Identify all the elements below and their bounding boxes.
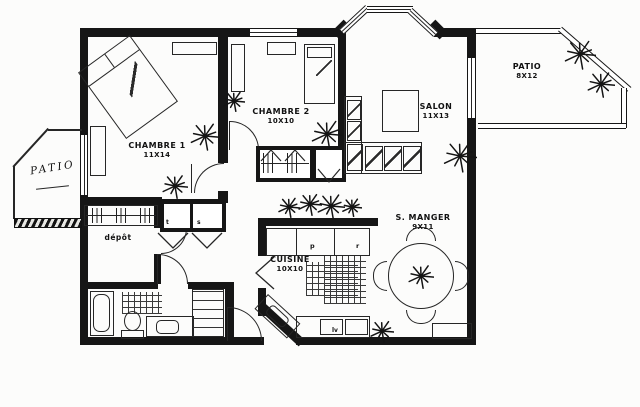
plant-icon bbox=[162, 173, 188, 203]
dishwasher-right bbox=[345, 319, 368, 335]
bay-window-center-pane bbox=[367, 6, 413, 13]
sofa-cushion-3 bbox=[365, 146, 383, 171]
kitchen-counter-north bbox=[266, 228, 370, 256]
wall-right-upper bbox=[467, 28, 476, 58]
door-arc-chambre2 bbox=[230, 121, 259, 150]
bed-chambre2 bbox=[304, 44, 335, 104]
dishwasher-label: lv bbox=[331, 328, 339, 334]
hall-closet-door-mark-1 bbox=[260, 149, 282, 162]
patio-left-label: PATIO bbox=[29, 159, 76, 178]
bed-chambre1 bbox=[78, 35, 178, 139]
bathtub-basin bbox=[93, 294, 110, 332]
patio-right-edge-bottom bbox=[478, 123, 626, 129]
sofa-cushion-corner bbox=[347, 144, 363, 171]
room-label-cuisine: CUISINE bbox=[270, 255, 310, 264]
depot-closet-clothes-3 bbox=[140, 208, 153, 223]
window-chambre2 bbox=[250, 28, 297, 37]
dining-chair-west bbox=[373, 261, 387, 291]
bed2-pillow bbox=[307, 47, 332, 58]
depot-closet-clothes-2 bbox=[116, 208, 129, 223]
kitchen-rug-b bbox=[324, 256, 366, 304]
kitchen-sink bbox=[265, 304, 291, 329]
room-label-patio-right: PATIO bbox=[513, 62, 541, 71]
plant-icon bbox=[223, 90, 245, 116]
room-label-depot: dépôt bbox=[104, 233, 131, 242]
closet-ts-divider bbox=[190, 202, 193, 229]
bed1-blanket-fold bbox=[115, 60, 152, 98]
closet-t-door-mark bbox=[156, 232, 190, 250]
sofa-cushion-2 bbox=[347, 121, 361, 141]
closet-t-label: t bbox=[166, 220, 169, 226]
closet-s-label: s bbox=[197, 220, 201, 226]
dresser-chambre2 bbox=[267, 42, 296, 55]
room-label-salle-a-manger: S. MANGER bbox=[395, 213, 450, 222]
kitchen-counter-divider-1 bbox=[296, 229, 297, 255]
room-dims-chambre1: 11X14 bbox=[144, 151, 171, 159]
sofa-cushion-4 bbox=[384, 146, 402, 171]
door-leaf-chambre1 bbox=[191, 164, 192, 193]
door-leaf-chambre2 bbox=[229, 121, 230, 150]
room-dims-salle-a-manger: 9X11 bbox=[412, 223, 434, 231]
sofa-cushion-1 bbox=[347, 100, 361, 120]
kitchen-counter-divider-2 bbox=[334, 229, 335, 255]
vanity-sink bbox=[156, 320, 179, 334]
room-dims-cuisine: 10X10 bbox=[277, 265, 304, 273]
plant-icon bbox=[408, 263, 434, 293]
coffee-table bbox=[382, 90, 419, 132]
door-arc-entry bbox=[228, 307, 262, 341]
buffet-cabinet bbox=[432, 323, 472, 339]
patio-right-edge-east bbox=[621, 88, 627, 128]
door-leaf-bathroom bbox=[157, 254, 158, 284]
dresser-chambre1-top bbox=[172, 42, 217, 55]
wall-bath-north-left bbox=[80, 282, 158, 289]
toilet-tank bbox=[121, 330, 144, 339]
hall-closet-door-mark-2 bbox=[284, 149, 306, 162]
patio-left-edge-diagonal bbox=[12, 128, 48, 167]
door-arc-chambre1 bbox=[194, 163, 224, 193]
closet-s-door-mark bbox=[190, 232, 224, 250]
patio-left-edge-west bbox=[13, 166, 15, 219]
plant-icon bbox=[311, 118, 343, 154]
plant-icon bbox=[370, 319, 394, 347]
small-closet-door-mark bbox=[317, 168, 341, 184]
sofa-cushion-5 bbox=[403, 146, 421, 171]
wall-kitchen-west-upper bbox=[258, 218, 266, 256]
dresser-chambre1-left bbox=[90, 126, 106, 176]
floor-plan-canvas: PATIO t s p r lv bbox=[0, 0, 640, 407]
plant-icon bbox=[564, 38, 596, 74]
linen-closet bbox=[192, 289, 224, 337]
depot-closet-clothes-1 bbox=[92, 208, 105, 223]
fridge-label: r bbox=[356, 243, 359, 250]
plant-icon bbox=[317, 192, 345, 224]
wardrobe-chambre2 bbox=[231, 44, 245, 92]
sliding-door-salon-patio bbox=[467, 58, 476, 118]
door-arc-bathroom bbox=[158, 254, 188, 284]
patio-left-edge-top bbox=[48, 129, 82, 131]
toilet-bowl bbox=[124, 311, 141, 331]
room-label-salon: SALON bbox=[420, 102, 453, 111]
patio-left-edge-bottom bbox=[14, 218, 82, 228]
closet-ts bbox=[160, 199, 226, 232]
door-leaf-entry bbox=[227, 307, 228, 341]
bath-rug bbox=[122, 292, 162, 314]
sliding-door-chambre1-patio bbox=[80, 135, 88, 195]
plant-icon bbox=[443, 139, 477, 177]
plant-icon bbox=[342, 197, 362, 221]
bed1-headboard-divider bbox=[104, 54, 114, 68]
stove-label: p bbox=[310, 243, 315, 250]
room-label-chambre2: CHAMBRE 2 bbox=[252, 107, 309, 116]
patio-right-edge-top bbox=[476, 28, 562, 34]
dining-chair-south bbox=[406, 310, 436, 324]
plant-icon bbox=[190, 121, 220, 155]
room-dims-salon: 11X13 bbox=[423, 112, 450, 120]
room-label-chambre1: CHAMBRE 1 bbox=[128, 141, 185, 150]
room-dims-patio-right: 8X12 bbox=[516, 72, 538, 80]
patio-left-underline bbox=[36, 185, 69, 190]
plant-icon bbox=[278, 196, 300, 222]
bed2-blanket-fold bbox=[316, 60, 332, 76]
room-dims-chambre2: 10X10 bbox=[268, 117, 295, 125]
plant-icon bbox=[587, 70, 615, 102]
